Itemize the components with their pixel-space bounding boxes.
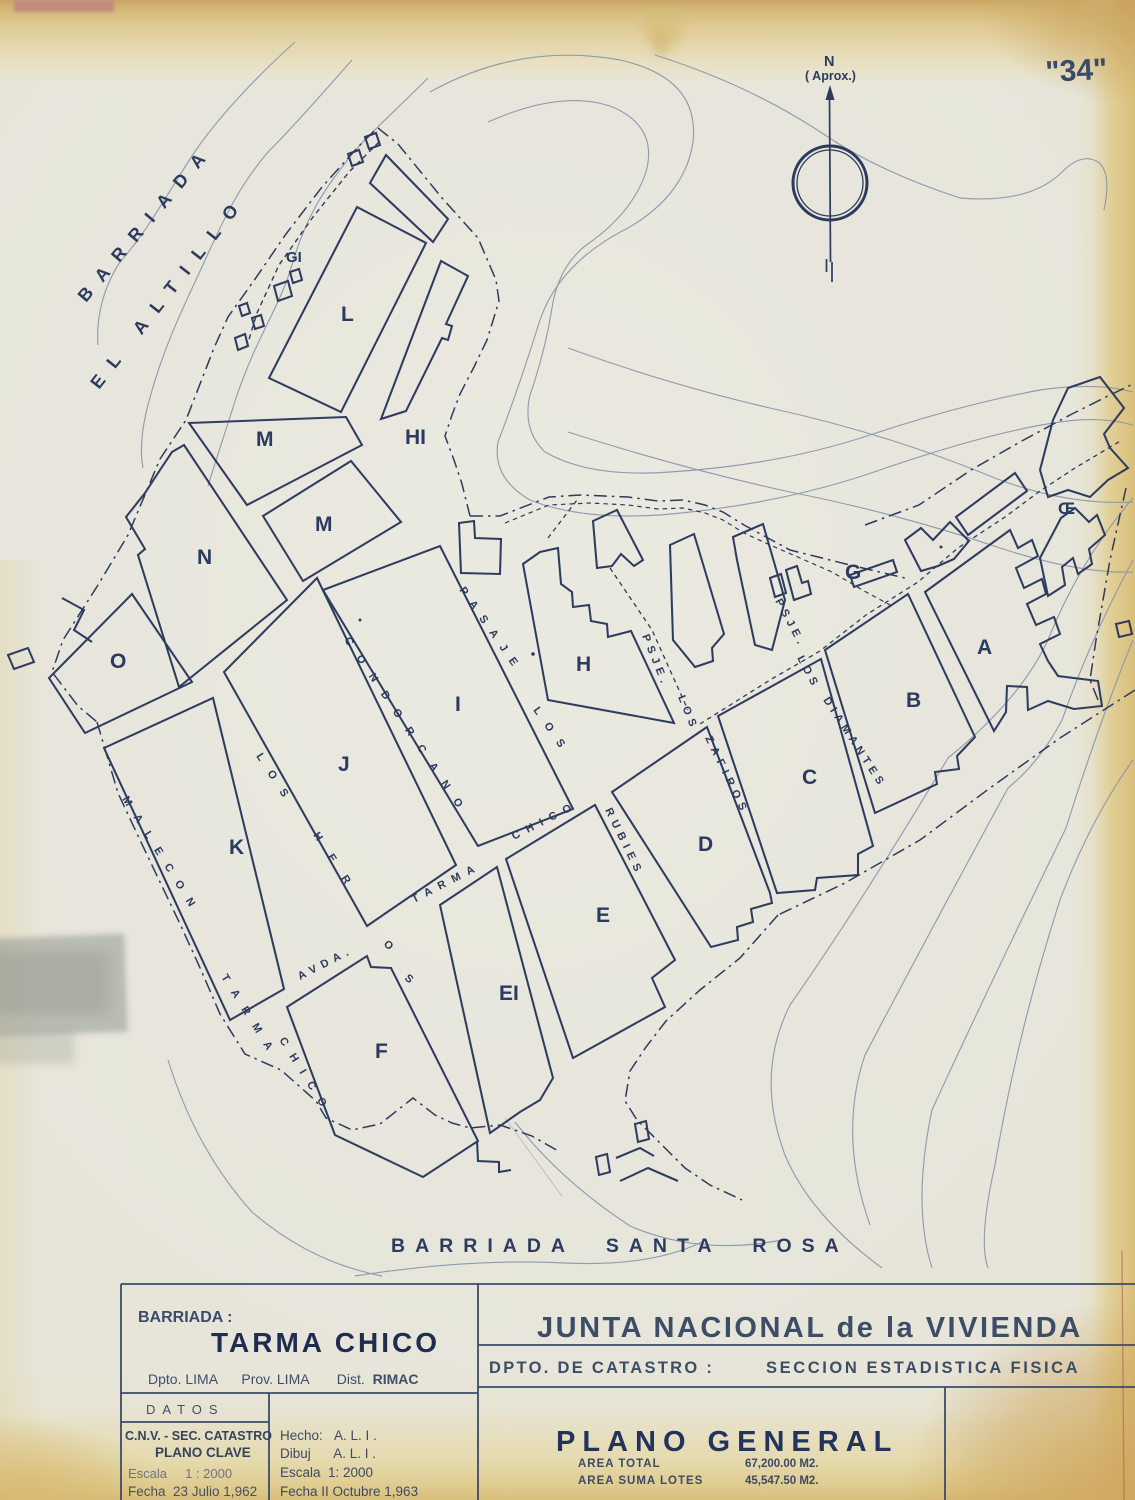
svg-text:G: G — [845, 561, 861, 584]
svg-text:B: B — [906, 689, 921, 712]
svg-text:BARRIADA SANTA ROSA: BARRIADA SANTA ROSA — [391, 1235, 849, 1257]
svg-text:A: A — [977, 636, 992, 659]
svg-text:O: O — [110, 650, 126, 673]
svg-text:LOS: LOS — [253, 751, 297, 810]
svg-text:EL ALTILLO: EL ALTILLO — [86, 190, 251, 393]
svg-text:Dibuj A. L. I .: Dibuj A. L. I . — [280, 1446, 376, 1461]
svg-text:C.N.V. - SEC. CATASTRO: C.N.V. - SEC. CATASTRO — [125, 1429, 272, 1443]
svg-text:45,547.50 M2.: 45,547.50 M2. — [745, 1475, 819, 1487]
svg-text:PLANO CLAVE: PLANO CLAVE — [155, 1445, 251, 1460]
svg-text:DPTO. DE CATASTRO :: DPTO. DE CATASTRO : — [489, 1359, 714, 1377]
svg-text:Dpto. LIMA Prov. LIMA: Dpto. LIMA Prov. LIMA Dist. RIMAC — [148, 1371, 418, 1387]
svg-text:Fecha II Octubre 1,963: Fecha II Octubre 1,963 — [280, 1484, 418, 1499]
svg-text:S: S — [402, 972, 415, 986]
svg-text:C: C — [802, 766, 817, 789]
svg-text:PSJE.: PSJE. — [772, 597, 808, 650]
svg-text:RUBIES: RUBIES — [602, 806, 645, 878]
svg-text:HER: HER — [310, 830, 362, 901]
svg-text:PLANO GENERAL: PLANO GENERAL — [556, 1426, 898, 1458]
svg-text:K: K — [229, 836, 244, 859]
svg-text:Œ: Œ — [1058, 499, 1075, 518]
svg-text:M: M — [315, 513, 333, 536]
svg-text:"34": "34" — [1045, 53, 1108, 89]
svg-text:Fecha 23 Julio 1,962: Fecha 23 Julio 1,962 — [128, 1484, 257, 1499]
svg-text:AVDA.: AVDA. — [296, 944, 356, 982]
svg-text:E: E — [596, 904, 610, 927]
svg-text:AREA TOTAL: AREA TOTAL — [578, 1458, 661, 1470]
svg-text:SECCION ESTADISTICA FISICA: SECCION ESTADISTICA FISICA — [766, 1359, 1080, 1377]
svg-text:Escala 1: 2000: Escala 1: 2000 — [280, 1465, 373, 1480]
svg-text:Hecho: A. L. I .: Hecho: A. L. I . — [280, 1428, 377, 1443]
svg-text:67,200.00 M2.: 67,200.00 M2. — [745, 1458, 819, 1470]
svg-text:MALECON: MALECON — [119, 794, 203, 919]
svg-text:L: L — [341, 303, 354, 326]
svg-text:D: D — [698, 833, 713, 856]
svg-text:ZAFIROS: ZAFIROS — [702, 734, 751, 817]
svg-text:CHICO: CHICO — [276, 1035, 334, 1118]
svg-text:LOS: LOS — [531, 705, 574, 760]
svg-text:O: O — [381, 938, 396, 953]
svg-text:F: F — [375, 1040, 388, 1063]
svg-text:I: I — [455, 693, 461, 716]
svg-text:TARMA CHICO: TARMA CHICO — [211, 1327, 440, 1358]
svg-text:M: M — [256, 428, 274, 451]
svg-text:N: N — [824, 54, 834, 70]
svg-text:EI: EI — [499, 982, 519, 1005]
svg-text:HI: HI — [405, 426, 426, 449]
svg-text:GI: GI — [286, 249, 302, 266]
svg-text:J: J — [338, 753, 350, 776]
svg-text:JUNTA NACIONAL de la VIVIENDA: JUNTA NACIONAL de la VIVIENDA — [537, 1312, 1083, 1344]
svg-text:N: N — [197, 546, 212, 569]
svg-text:H: H — [576, 653, 591, 676]
svg-text:( Aprox.): ( Aprox.) — [805, 69, 856, 83]
svg-text:CONDORCANO: CONDORCANO — [342, 635, 473, 821]
svg-text:LOS: LOS — [675, 694, 700, 733]
svg-text:PASAJE: PASAJE — [457, 585, 526, 676]
svg-text:AREA SUMA LOTES: AREA SUMA LOTES — [578, 1475, 703, 1487]
svg-text:DATOS: DATOS — [146, 1402, 225, 1417]
svg-text:BARRIADA :: BARRIADA : — [138, 1309, 233, 1326]
svg-text:Escala 1 : 2000: Escala 1 : 2000 — [128, 1466, 232, 1481]
